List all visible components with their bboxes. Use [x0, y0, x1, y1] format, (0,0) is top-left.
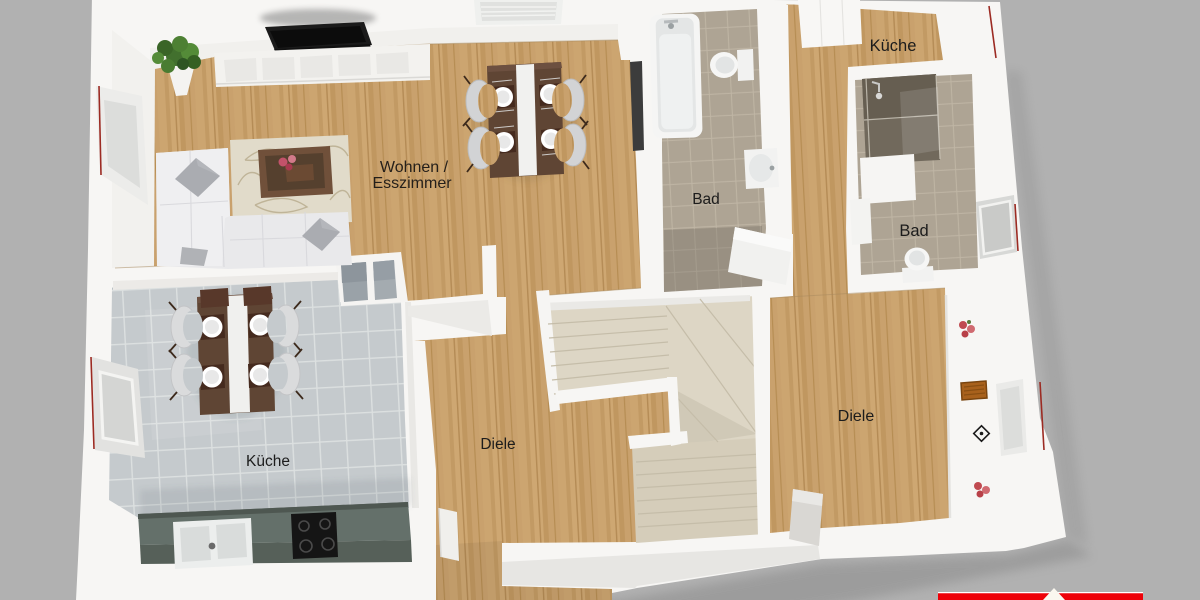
- svg-text:Küche: Küche: [870, 37, 917, 55]
- svg-text:Esszimmer: Esszimmer: [372, 175, 452, 192]
- svg-text:Bad: Bad: [899, 222, 928, 240]
- svg-text:Diele: Diele: [838, 408, 875, 425]
- svg-text:Diele: Diele: [480, 436, 515, 453]
- svg-text:Bad: Bad: [692, 191, 720, 208]
- svg-text:Küche: Küche: [246, 453, 290, 470]
- svg-text:Wohnen /: Wohnen /: [380, 159, 449, 176]
